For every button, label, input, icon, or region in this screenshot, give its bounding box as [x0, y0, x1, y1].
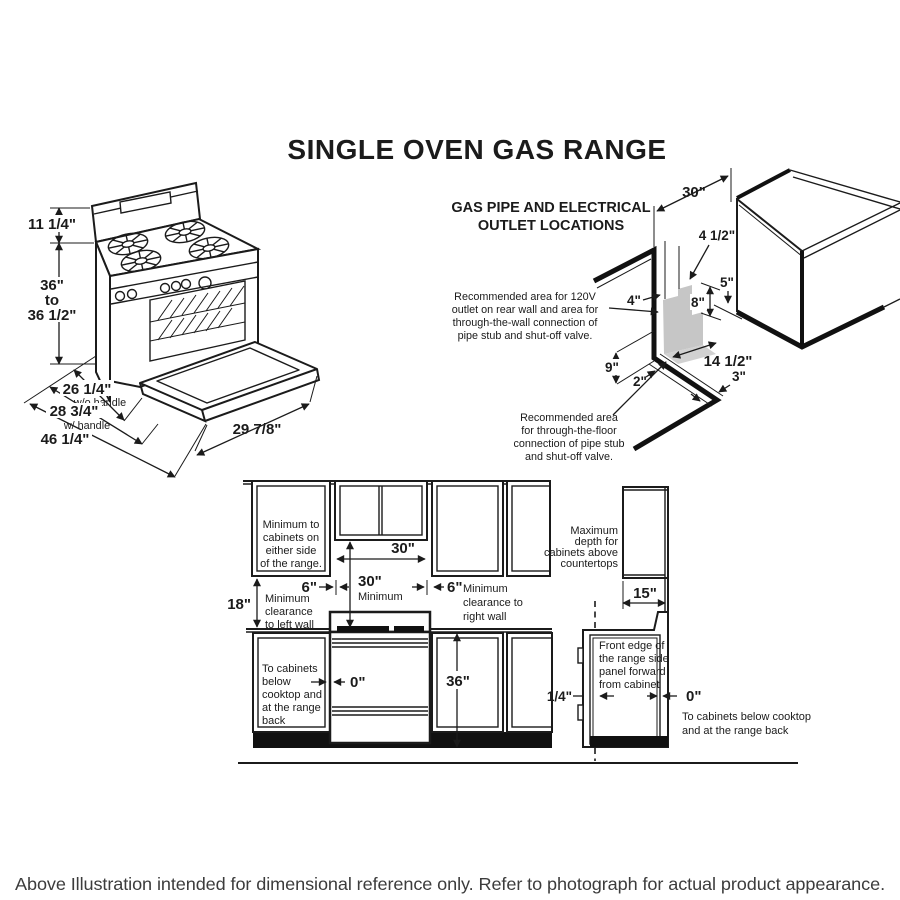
dim-gas-3: 3" [691, 369, 746, 401]
dim-side-15: 15" [623, 581, 665, 609]
depth-note-line4: countertops [561, 558, 619, 570]
installation-diagram-page: SINGLE OVEN GAS RANGE [0, 0, 900, 900]
range-isometric-drawing: 11 1/4" 36" to 36 1/2" 26 1/4" w/o handl… [18, 183, 319, 477]
left-wall-note-line2: clearance [265, 606, 313, 618]
floor-note-line2: for through-the-floor [521, 425, 617, 437]
dim-backsplash-height: 11 1/4" [20, 208, 94, 243]
dim-height-max: 36 1/2" [28, 307, 77, 324]
upper-cabinet-right-a [432, 481, 503, 576]
range-front-view [330, 612, 430, 743]
dim-elev-0-label: 0" [350, 674, 365, 691]
front-edge-note-line2: the range side [599, 653, 669, 665]
floor-note-line3: connection of pipe stub [513, 438, 624, 450]
gas-diagram-title-line2: OUTLET LOCATIONS [478, 218, 625, 234]
dim-gas-9-label: 9" [605, 360, 619, 375]
cabinet-note-line1: Minimum to [263, 519, 320, 531]
dim-gas-30-label: 30" [682, 184, 706, 201]
cabinet-note-line3: either side [266, 545, 317, 557]
base-cabinet-right-b [507, 633, 552, 732]
page-title: SINGLE OVEN GAS RANGE [287, 134, 666, 165]
upper-cabinet-right-b [507, 481, 550, 576]
below-note-line1: To cabinets [262, 663, 318, 675]
dim-gas-4-5: 4 1/2" [690, 228, 735, 279]
cabinet-note-line4: of the range. [260, 558, 322, 570]
dim-gas-2-label: 2" [633, 374, 647, 389]
right-wall-note-line2: clearance to [463, 597, 523, 609]
dim-gas-14-5-label: 14 1/2" [704, 353, 753, 370]
footer-caption: Above Illustration intended for dimensio… [15, 874, 885, 894]
dim-elev-30-vert-label: 30" [358, 573, 382, 590]
dim-depth-no-handle: 26 1/4" [63, 381, 112, 398]
dim-depth-handle: 28 3/4" [50, 403, 99, 420]
diagram-canvas: SINGLE OVEN GAS RANGE [0, 0, 900, 900]
door-handle-bump-bottom [578, 705, 583, 720]
burner-cap-right [394, 626, 424, 632]
dim-elev-36-label: 36" [446, 673, 470, 690]
right-wall-note-line1: Minimum [463, 583, 508, 595]
dim-depth-door-open: 46 1/4" [41, 431, 90, 448]
dim-gas-4-label: 4" [627, 293, 641, 308]
floor-note-line4: and shut-off valve. [525, 451, 613, 463]
side-zero-note-line1: To cabinets below cooktop [682, 711, 811, 723]
below-note-line2: below [262, 676, 291, 688]
dim-elev-30-vert-minimum: Minimum [358, 591, 403, 603]
side-zero-note-line2: and at the range back [682, 725, 789, 737]
wall-note-line4: pipe stub and shut-off valve. [458, 330, 593, 342]
dim-elev-30-horiz-label: 30" [391, 540, 415, 557]
adjacent-cabinet [737, 170, 900, 347]
front-elevation: Minimum to cabinets on either side of th… [227, 481, 552, 748]
side-upper-cabinet [623, 487, 668, 578]
dim-door-width-label: 29 7/8" [233, 421, 282, 438]
below-note-line4: at the range [262, 702, 321, 714]
door-handle-bump-top [578, 648, 583, 663]
front-edge-note-line4: from cabinet [599, 679, 660, 691]
front-edge-note-line3: panel forward [599, 666, 666, 678]
floor-note-line1: Recommended area [520, 412, 618, 424]
left-wall-note-line3: to left wall [265, 619, 314, 631]
dim-side-quarter-label: 1/4" [547, 689, 572, 704]
dim-side-15-label: 15" [633, 585, 657, 602]
side-view: Maximum depth for cabinets above counter… [544, 487, 811, 761]
wall-note-line3: through-the-wall connection of [453, 317, 599, 329]
gas-outlet-diagram: GAS PIPE AND ELECTRICAL OUTLET LOCATIONS… [451, 168, 900, 463]
upper-cabinet-center [335, 481, 427, 540]
right-wall-note-line3: right wall [463, 611, 506, 623]
side-toe-kick [590, 736, 668, 747]
gas-diagram-title-line1: GAS PIPE AND ELECTRICAL [451, 200, 650, 216]
wall-note-line2: outlet on rear wall and area for [452, 304, 599, 316]
dim-gas-8-label: 8" [691, 295, 705, 310]
dim-gas-3-label: 3" [732, 369, 746, 384]
dim-elev-18-label: 18" [227, 596, 251, 613]
dim-range-height: 36" to 36 1/2" [18, 243, 96, 364]
cabinet-note-line2: cabinets on [263, 532, 319, 544]
dim-side-0-label: 0" [686, 688, 701, 705]
dim-gas-2: 2" [633, 371, 655, 389]
wall-note-line1: Recommended area for 120V [454, 291, 596, 303]
front-edge-note-line1: Front edge of [599, 640, 665, 652]
below-note-line5: back [262, 715, 286, 727]
dim-elev-right-6-label: 6" [447, 579, 462, 596]
dim-backsplash-height-label: 11 1/4" [28, 216, 76, 233]
left-wall-note-line1: Minimum [265, 593, 310, 605]
upper-cabinet-left: Minimum to cabinets on either side of th… [252, 481, 330, 576]
dim-gas-5-label: 5" [720, 275, 734, 290]
dim-gas-4-5-label: 4 1/2" [699, 228, 735, 243]
below-note-line3: cooktop and [262, 689, 322, 701]
range-body-front [330, 632, 430, 743]
burner-cap-left [337, 626, 389, 632]
